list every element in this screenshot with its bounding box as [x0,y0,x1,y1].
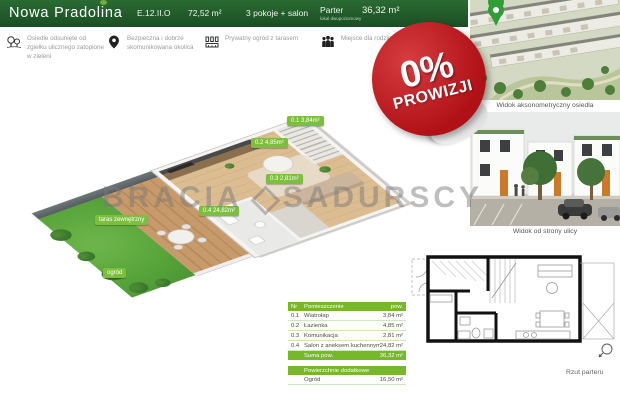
photo-estate-aerial [470,0,620,100]
table-extra-header-row: Powierzchnie dodatkowe [288,366,406,375]
fence-icon [204,34,220,50]
plan2d-caption: Rzut parteru [566,369,620,376]
feature-text: Bezpieczna i dobrze skomunikowana okolic… [127,34,207,52]
zero-commission-badge: 0% PROWIZJI [372,22,492,140]
tree-logo-icon [99,0,108,6]
cell-area: 2,81 m² [383,333,403,339]
cell-name: Pomieszczenie [304,304,391,310]
feature-item: Prywatny ogród z tarasem [204,34,305,50]
kitchen-counter [159,139,261,180]
room-label: 0.1 3,84m² [287,116,324,126]
cell-area: 16,50 m² [380,377,403,383]
unit-rooms: 3 pokoje + salon [246,8,308,18]
map-pin-icon [106,34,122,50]
project-name: Nowa Pradolina [9,5,123,21]
unit-total-area: 72,52 m² [188,8,222,18]
room-label: ogród [103,268,126,278]
unit-level-note: lokal dwupoziomowy [320,16,361,21]
feature-item: Bezpieczna i dobrze skomunikowana okolic… [106,34,207,52]
table-header-row: NrPomieszczeniepow. [288,302,406,311]
room-label: taras zewnętrzny [95,215,148,225]
room-label: 0.2 4,85m² [251,138,288,148]
unit-level: Parter [320,5,343,15]
table-row: 0.1Wiatrołap3,84 m² [288,311,406,321]
unit-card-page: Nowa Pradolina E.12.II.O 72,52 m² 3 poko… [0,0,620,400]
room-label: 0.4 24,82m² [199,206,239,216]
cell-area: 4,85 m² [383,323,403,329]
cell-area: 36,32 m² [380,353,403,359]
table-total-row: Suma pow.36,32 m² [288,351,406,360]
table-row: 0.4Salon z aneksem kuchennym24,82 m² [288,341,406,351]
cell-name: Salon z aneksem kuchennym [304,343,380,349]
plant [223,162,236,169]
feature-text: Osiedle odsunięte od zgiełku ulicznego z… [27,34,107,61]
cell-nr: 0.4 [291,343,304,349]
cell-nr: Nr [291,304,304,310]
photo-street-view [470,112,620,226]
photo1-caption: Widok aksonometryczny osiedla [470,100,620,112]
unit-level-area: 36,32 m² [362,5,400,16]
feature-text: Prywatny ogród z tarasem [225,34,305,43]
cell-name: Suma pow. [304,353,380,359]
floorplan-2d [400,243,620,378]
table-row: 0.2Łazienka4,85 m² [288,321,406,331]
rooms-table: NrPomieszczeniepow.0.1Wiatrołap3,84 m²0.… [288,302,406,385]
photo2-caption: Widok od strony ulicy [470,226,620,238]
unit-code: E.12.II.O [137,8,171,18]
cell-area: 24,82 m² [380,343,403,349]
table-extra-row: Ogród16,50 m² [288,375,406,385]
trees-icon [6,34,22,50]
feature-item: Osiedle odsunięte od zgiełku ulicznego z… [6,34,107,61]
cell-nr: 0.2 [291,323,304,329]
cell-nr: 0.3 [291,333,304,339]
table-row: 0.3Komunikacja2,81 m² [288,331,406,341]
room-label: 0.3 2,81m² [266,174,303,184]
cell-name: Łazienka [304,323,383,329]
cell-name: Ogród [304,377,380,383]
cell-name: Komunikacja [304,333,383,339]
cell-area: pow. [391,304,403,310]
cell-nr: 0.1 [291,313,304,319]
cell-area: 3,84 m² [383,313,403,319]
toilet [253,221,266,228]
family-icon [320,34,336,50]
cell-name: Wiatrołap [304,313,383,319]
washer [249,236,265,245]
cell-name: Powierzchnie dodatkowe [304,368,403,374]
